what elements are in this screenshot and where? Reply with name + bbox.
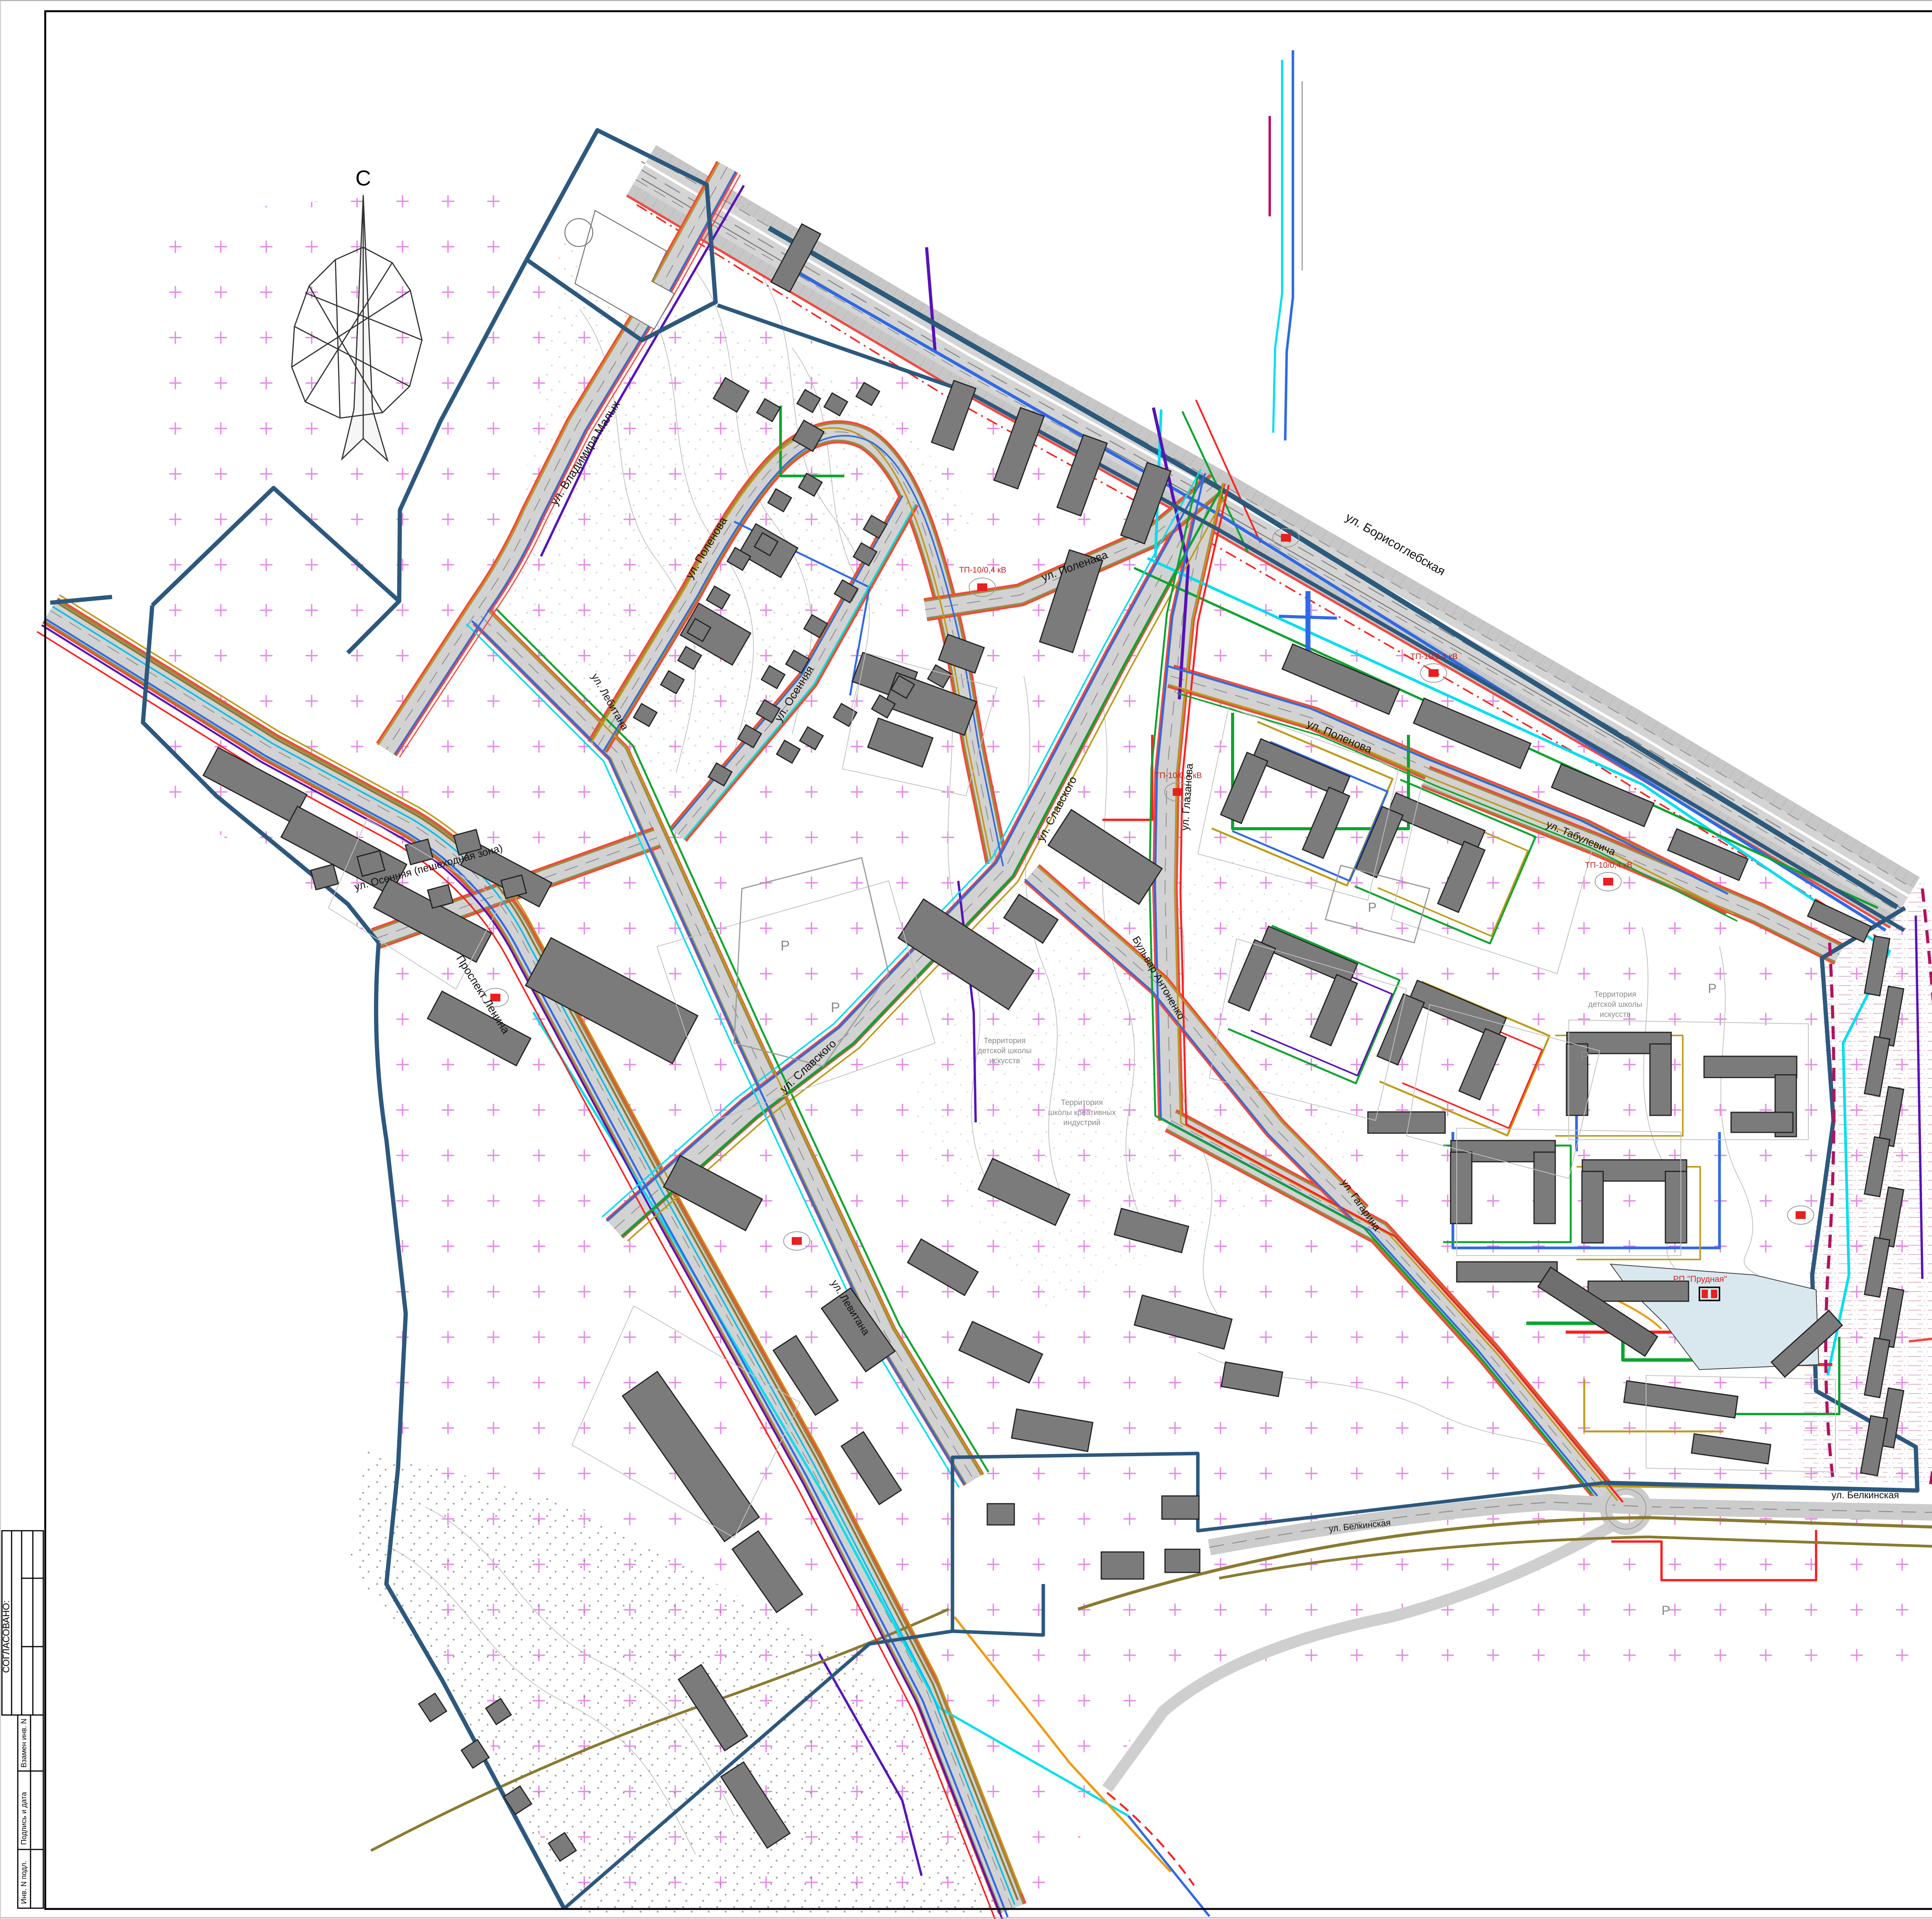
svg-text:ТП-10/0,4 кВ: ТП-10/0,4 кВ xyxy=(1155,771,1202,780)
svg-text:Р: Р xyxy=(1368,900,1377,915)
svg-text:Р: Р xyxy=(1708,981,1717,996)
svg-text:Подпись и дата: Подпись и дата xyxy=(20,1792,28,1845)
svg-text:индустрий: индустрий xyxy=(1063,1118,1100,1127)
svg-text:детской школы: детской школы xyxy=(1588,1000,1642,1009)
svg-text:СОГЛАСОВАНО:: СОГЛАСОВАНО: xyxy=(1,1600,12,1673)
svg-text:РП "Прудная": РП "Прудная" xyxy=(1673,1274,1727,1284)
svg-text:ТП-10/0,4 кВ: ТП-10/0,4 кВ xyxy=(1410,652,1458,661)
svg-text:С: С xyxy=(355,166,371,190)
svg-text:Взамен инв. N: Взамен инв. N xyxy=(20,1718,28,1768)
svg-text:Р: Р xyxy=(1580,1049,1589,1064)
svg-text:Р: Р xyxy=(1662,1603,1670,1618)
svg-text:ул. Белкинская: ул. Белкинская xyxy=(1832,1490,1899,1501)
svg-text:Территория: Территория xyxy=(984,1037,1026,1045)
svg-text:ТП-10/0,4 кВ: ТП-10/0,4 кВ xyxy=(1585,861,1632,870)
svg-text:школы креативных: школы креативных xyxy=(1048,1108,1116,1117)
svg-text:Территория: Территория xyxy=(1061,1098,1103,1107)
svg-text:искусств: искусств xyxy=(989,1057,1020,1065)
svg-text:Р: Р xyxy=(831,999,840,1015)
svg-text:искусств: искусств xyxy=(1600,1010,1631,1019)
svg-text:Инв. N подл.: Инв. N подл. xyxy=(20,1861,28,1904)
svg-text:Территория: Территория xyxy=(1594,990,1636,999)
svg-text:детской школы: детской школы xyxy=(978,1047,1032,1055)
svg-text:Р: Р xyxy=(781,938,790,954)
svg-text:ТП-10/0,4 кВ: ТП-10/0,4 кВ xyxy=(959,566,1006,575)
